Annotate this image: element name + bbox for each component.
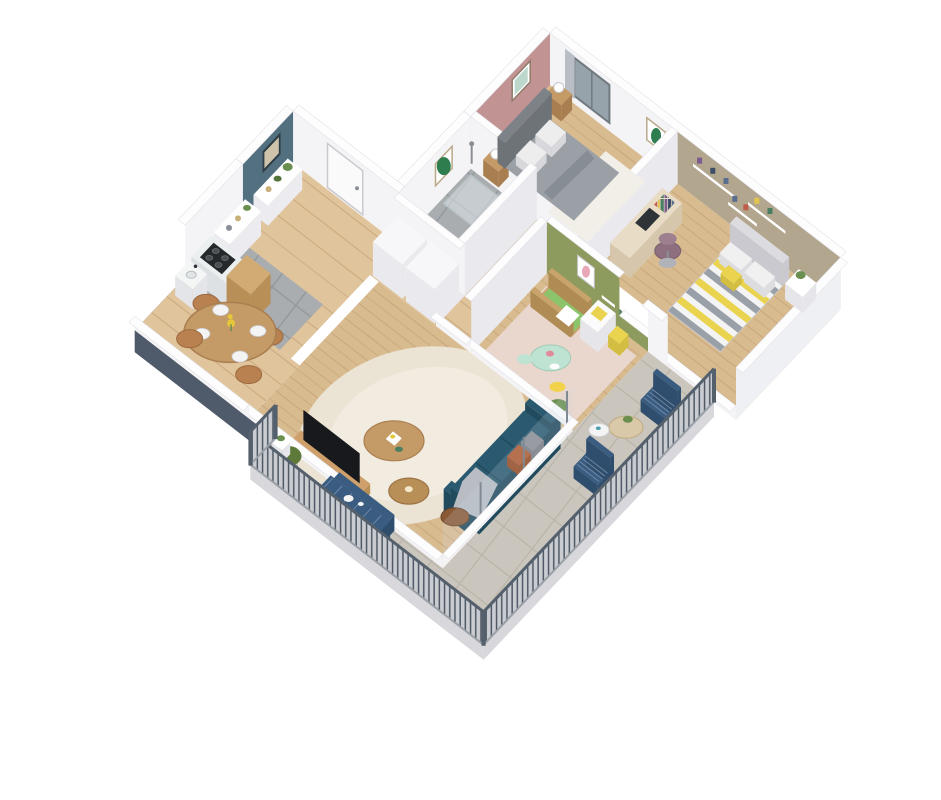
plant (277, 435, 285, 441)
burner (222, 256, 229, 261)
small-white-table (589, 424, 609, 437)
candle (405, 486, 413, 492)
jar (266, 186, 272, 192)
jar (226, 225, 232, 231)
door-handle (355, 186, 359, 190)
green-leaf-art (437, 157, 451, 175)
kids-stool (517, 354, 533, 364)
shelf-toy (743, 204, 748, 210)
burner (206, 255, 213, 260)
sphere-lamp (554, 83, 564, 93)
tray-decor (390, 435, 395, 439)
scene-container (0, 0, 941, 800)
apartment-3d-render (0, 0, 941, 800)
jar (235, 215, 241, 221)
plant (274, 176, 282, 182)
sink-faucet (194, 264, 198, 268)
plate (213, 305, 229, 316)
plant (796, 271, 806, 279)
teacup (596, 426, 601, 430)
railing-post (482, 612, 486, 646)
shelf-toy (732, 196, 737, 202)
railing-post (712, 369, 716, 403)
shelf-toy (710, 168, 715, 174)
plate (344, 495, 354, 502)
yellow-flowers (228, 314, 233, 319)
plant (283, 163, 293, 171)
plate (250, 326, 266, 337)
shelf-toy (768, 208, 773, 214)
railing-post (274, 405, 278, 439)
chair-base (659, 258, 677, 268)
kids-table-paper (550, 363, 560, 369)
dining-chair (177, 330, 203, 348)
kids-stool (549, 382, 565, 392)
teacup (358, 502, 364, 506)
plate (232, 351, 248, 362)
plant (623, 416, 633, 423)
coffee-table-plant (395, 447, 403, 452)
burner (215, 263, 222, 268)
dining-chair (236, 366, 262, 384)
shelf-toy (697, 158, 702, 164)
shelf-toy (754, 198, 759, 204)
kids-table-toy (546, 351, 554, 357)
burner (212, 249, 219, 254)
bunny-art (582, 266, 590, 278)
railing-post (248, 432, 252, 466)
shelf-toy (724, 178, 729, 184)
office-chair-back (659, 233, 677, 245)
plant (243, 205, 251, 211)
sink-basin (186, 271, 196, 278)
